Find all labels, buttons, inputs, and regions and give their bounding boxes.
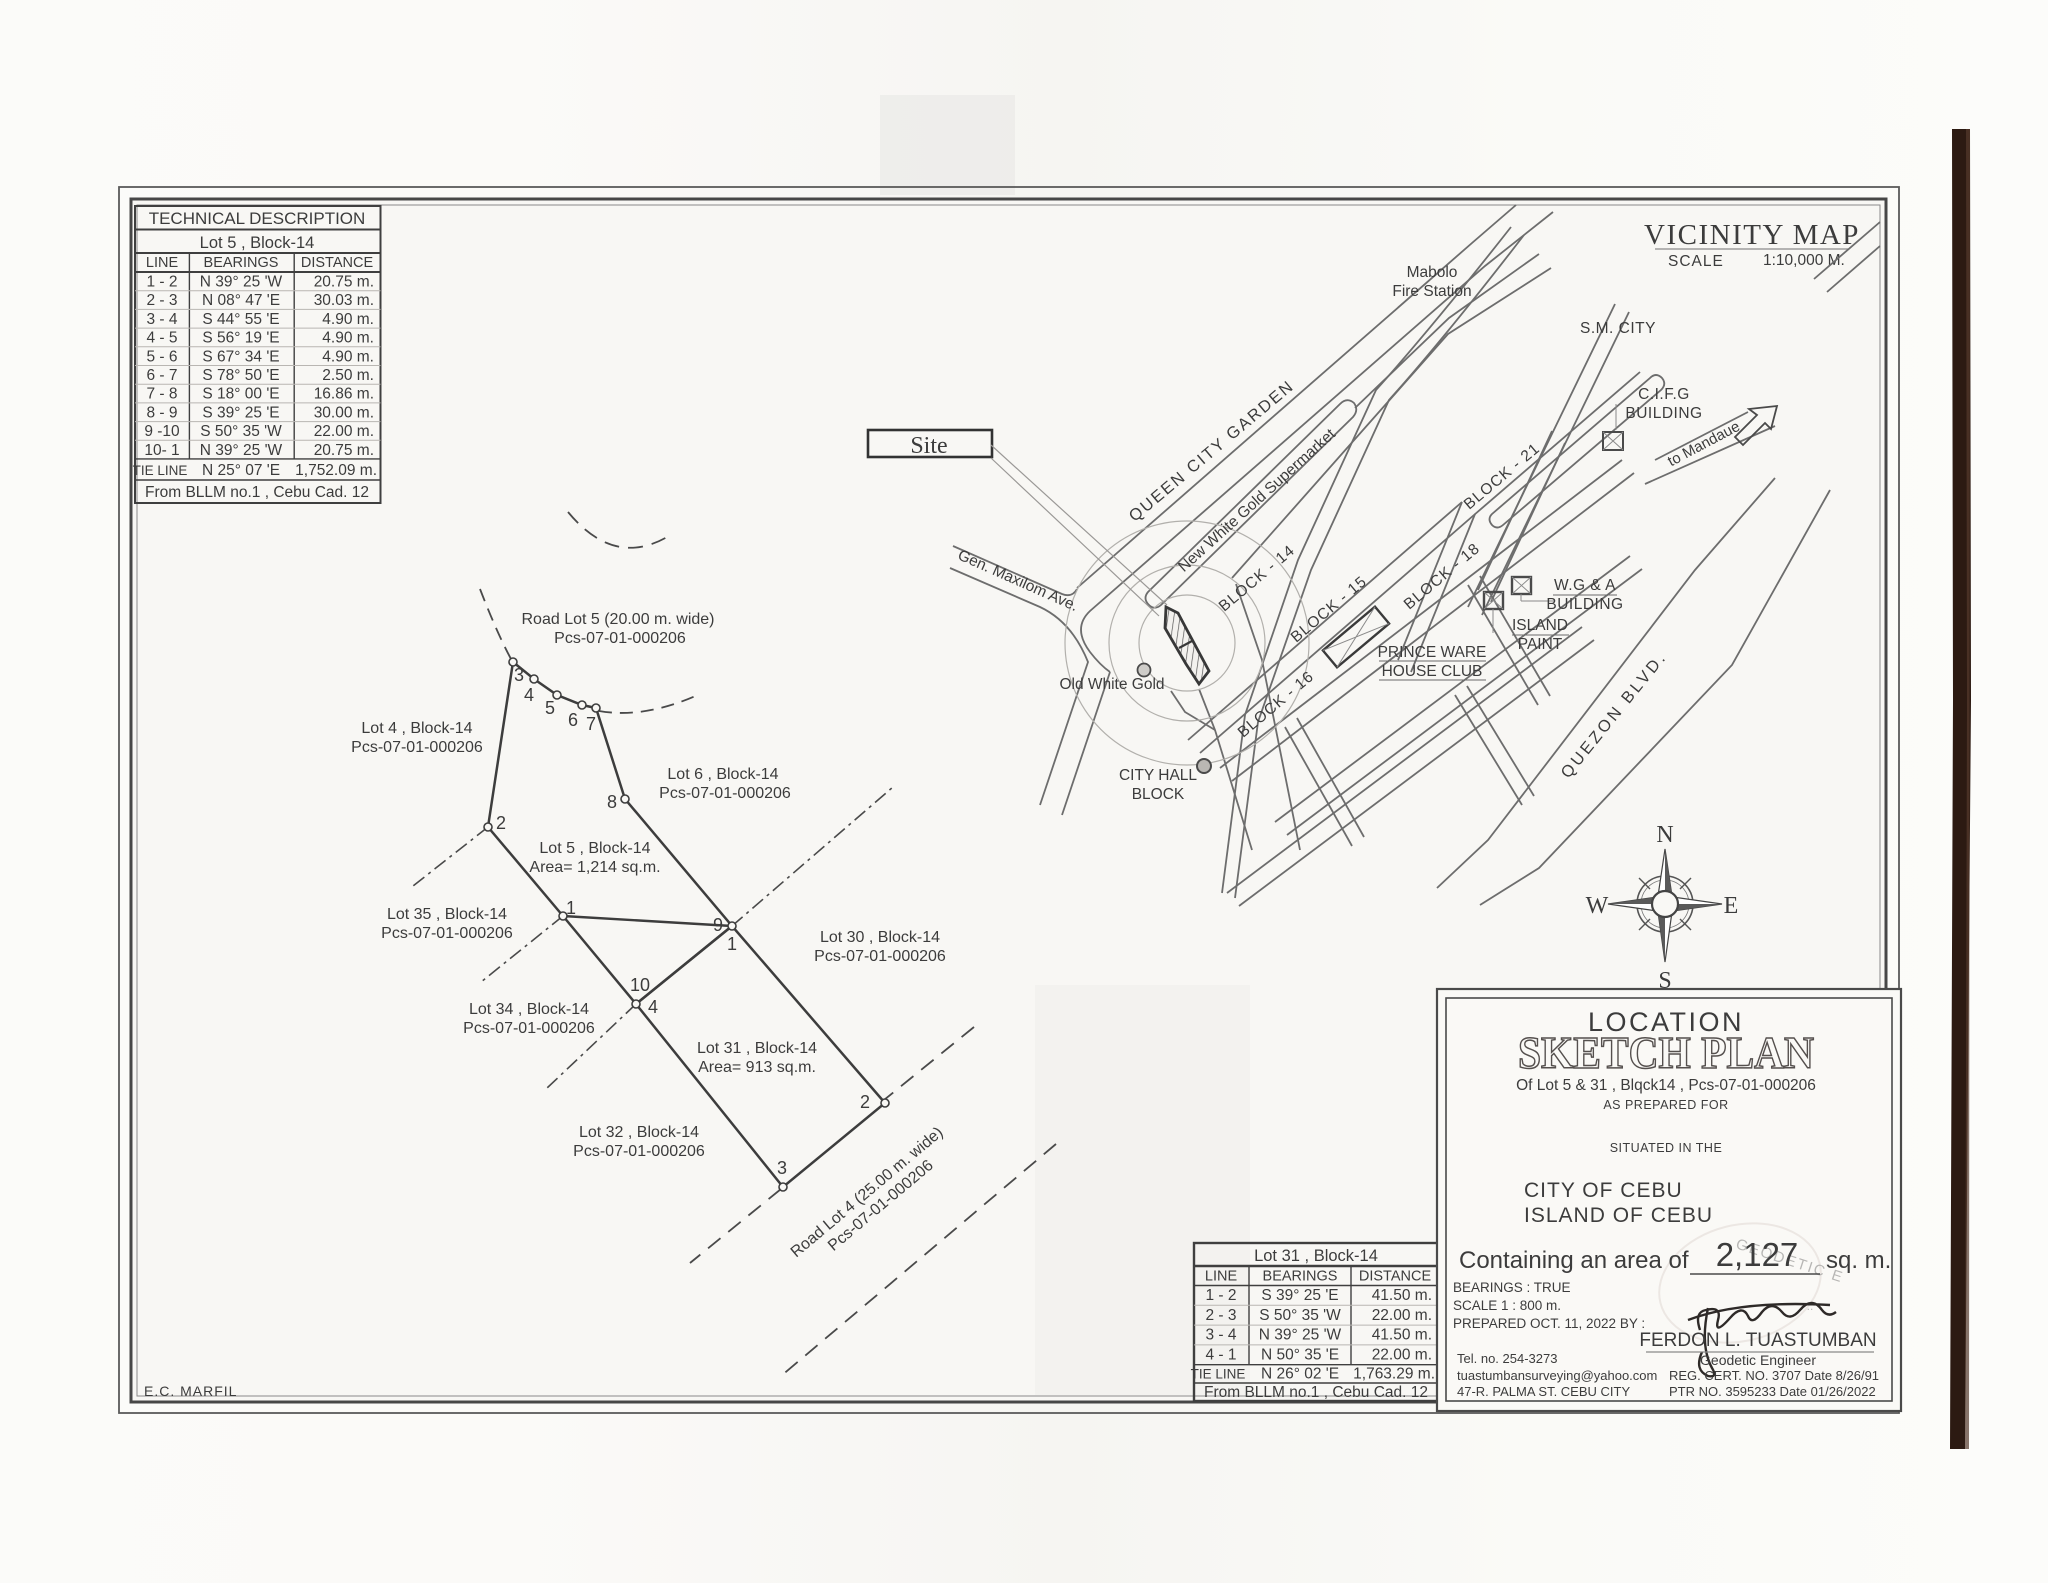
- svg-text:S 18° 00 'E: S 18° 00 'E: [202, 386, 279, 403]
- svg-text:Lot 5 , Block-14: Lot 5 , Block-14: [200, 234, 315, 252]
- svg-text:DISTANCE: DISTANCE: [301, 255, 374, 271]
- svg-text:Pcs-07-01-000206: Pcs-07-01-000206: [554, 630, 686, 647]
- svg-text:Fire Station: Fire Station: [1392, 283, 1471, 300]
- svg-text:BEARINGS : TRUE: BEARINGS : TRUE: [1453, 1280, 1571, 1295]
- svg-text:Old White Gold: Old White Gold: [1059, 676, 1164, 693]
- svg-text:Geodetic Engineer: Geodetic Engineer: [1700, 1352, 1816, 1368]
- svg-text:Tel. no. 254-3273: Tel. no. 254-3273: [1457, 1351, 1557, 1366]
- svg-text:N 39° 25 'W: N 39° 25 'W: [200, 274, 283, 291]
- svg-text:Lot 32 , Block-14: Lot 32 , Block-14: [579, 1124, 699, 1141]
- svg-text:N 25° 07 'E: N 25° 07 'E: [202, 462, 280, 479]
- svg-text:C.I.F.G: C.I.F.G: [1638, 386, 1690, 403]
- svg-text:1,752.09 m.: 1,752.09 m.: [295, 462, 377, 479]
- svg-text:Lot 31 , Block-14: Lot 31 , Block-14: [1254, 1247, 1378, 1265]
- svg-text:TIE LINE: TIE LINE: [1191, 1367, 1246, 1382]
- svg-text:30.03 m.: 30.03 m.: [314, 292, 374, 309]
- svg-text:BUILDING: BUILDING: [1625, 405, 1702, 422]
- svg-text:Lot 31 , Block-14: Lot 31 , Block-14: [697, 1040, 817, 1057]
- svg-text:N: N: [1656, 822, 1673, 848]
- svg-text:From BLLM no.1 , Cebu Cad. 12: From BLLM no.1 , Cebu Cad. 12: [145, 484, 369, 501]
- svg-text:Area= 1,214 sq.m.: Area= 1,214 sq.m.: [529, 859, 660, 876]
- svg-text:4 - 1: 4 - 1: [1205, 1346, 1236, 1363]
- svg-text:4.90 m.: 4.90 m.: [322, 330, 374, 347]
- svg-text:2.50 m.: 2.50 m.: [322, 367, 374, 384]
- svg-text:Of Lot 5 & 31 , Blqck14 , Pcs-: Of Lot 5 & 31 , Blqck14 , Pcs-07-01-0002…: [1516, 1077, 1816, 1094]
- svg-text:2 - 3: 2 - 3: [1205, 1307, 1236, 1324]
- svg-text:REG. CERT. NO. 3707 Date 8/2: REG. CERT. NO. 3707 Date 8/26/91: [1669, 1368, 1879, 1383]
- svg-text:BUILDING: BUILDING: [1546, 596, 1623, 613]
- svg-text:N 08° 47 'E: N 08° 47 'E: [202, 292, 280, 309]
- svg-text:From BLLM no.1 , Cebu Cad. 12: From BLLM no.1 , Cebu Cad. 12: [1204, 1384, 1428, 1401]
- svg-text:3: 3: [514, 665, 524, 685]
- svg-text:S 50° 35 'W: S 50° 35 'W: [200, 423, 282, 440]
- svg-text:Pcs-07-01-000206: Pcs-07-01-000206: [381, 925, 513, 942]
- svg-text:Lot 6 , Block-14: Lot 6 , Block-14: [667, 766, 778, 783]
- svg-text:2: 2: [860, 1092, 870, 1112]
- svg-text:8 - 9: 8 - 9: [146, 404, 177, 421]
- svg-text:SCALE 1 : 800 m.: SCALE 1 : 800 m.: [1453, 1298, 1561, 1313]
- svg-text:CITY OF CEBU: CITY OF CEBU: [1524, 1179, 1683, 1202]
- svg-text:BEARINGS: BEARINGS: [204, 255, 279, 271]
- svg-text:W.G & A: W.G & A: [1554, 577, 1616, 594]
- svg-text:PAINT: PAINT: [1518, 636, 1563, 653]
- svg-text:PREPARED OCT. 11, 2022 BY :: PREPARED OCT. 11, 2022 BY :: [1453, 1316, 1645, 1331]
- svg-text:10: 10: [630, 975, 650, 995]
- svg-text:BLOCK: BLOCK: [1132, 786, 1185, 803]
- svg-text:S.M. CITY: S.M. CITY: [1580, 320, 1656, 337]
- svg-text:Site: Site: [910, 433, 947, 459]
- svg-text:41.50 m.: 41.50 m.: [1372, 1287, 1432, 1304]
- svg-text:Pcs-07-01-000206: Pcs-07-01-000206: [659, 785, 791, 802]
- svg-text:SITUATED IN THE: SITUATED IN THE: [1610, 1141, 1723, 1155]
- svg-text:2: 2: [496, 813, 506, 833]
- svg-text:8: 8: [607, 792, 617, 812]
- svg-text:7 - 8: 7 - 8: [146, 386, 177, 403]
- svg-text:6: 6: [568, 710, 578, 730]
- svg-text:Lot 4 , Block-14: Lot 4 , Block-14: [361, 720, 472, 737]
- svg-text:Pcs-07-01-000206: Pcs-07-01-000206: [814, 948, 946, 965]
- svg-text:20.75 m.: 20.75 m.: [314, 274, 374, 291]
- svg-text:Pcs-07-01-000206: Pcs-07-01-000206: [351, 739, 483, 756]
- svg-text:LINE: LINE: [1205, 1269, 1238, 1285]
- svg-text:16.86 m.: 16.86 m.: [314, 386, 374, 403]
- svg-text:Containing an area of: Containing an area of: [1459, 1247, 1689, 1274]
- svg-text:BEARINGS: BEARINGS: [1263, 1269, 1338, 1285]
- svg-text:2,127: 2,127: [1716, 1236, 1799, 1273]
- svg-text:ISLAND OF CEBU: ISLAND OF CEBU: [1524, 1204, 1713, 1227]
- svg-text:4: 4: [524, 685, 534, 705]
- svg-text:Lot 35 , Block-14: Lot 35 , Block-14: [387, 906, 507, 923]
- svg-text:4.90 m.: 4.90 m.: [322, 348, 374, 365]
- svg-text:E.C. MARFIL: E.C. MARFIL: [144, 1383, 237, 1399]
- svg-text:1: 1: [566, 898, 576, 918]
- svg-text:1 - 2: 1 - 2: [146, 274, 177, 291]
- svg-text:W: W: [1586, 893, 1609, 919]
- svg-text:SCALE: SCALE: [1668, 253, 1724, 270]
- svg-text:Lot 34 , Block-14: Lot 34 , Block-14: [469, 1001, 589, 1018]
- svg-text:4: 4: [648, 997, 658, 1017]
- svg-text:VICINITY MAP: VICINITY MAP: [1644, 219, 1860, 251]
- svg-text:1:10,000 M.: 1:10,000 M.: [1763, 252, 1845, 269]
- svg-text:S 39° 25 'E: S 39° 25 'E: [202, 404, 279, 421]
- svg-text:41.50 m.: 41.50 m.: [1372, 1327, 1432, 1344]
- svg-text:N 39° 25 'W: N 39° 25 'W: [1259, 1327, 1342, 1344]
- svg-text:1 - 2: 1 - 2: [1205, 1287, 1236, 1304]
- svg-text:22.00 m.: 22.00 m.: [314, 423, 374, 440]
- svg-text:PRINCE WARE: PRINCE WARE: [1378, 644, 1487, 661]
- svg-text:Mabolo: Mabolo: [1407, 264, 1458, 281]
- svg-text:S 67° 34 'E: S 67° 34 'E: [202, 348, 279, 365]
- svg-text:5: 5: [545, 698, 555, 718]
- svg-text:30.00 m.: 30.00 m.: [314, 404, 374, 421]
- svg-text:S 56° 19 'E: S 56° 19 'E: [202, 330, 279, 347]
- svg-text:10- 1: 10- 1: [144, 442, 179, 459]
- svg-text:sq. m.: sq. m.: [1826, 1247, 1891, 1274]
- svg-text:2 - 3: 2 - 3: [146, 292, 177, 309]
- svg-text:PTR NO. 3595233 Date 01/26/2: PTR NO. 3595233 Date 01/26/2022: [1669, 1384, 1876, 1399]
- svg-text:4 - 5: 4 - 5: [146, 330, 177, 347]
- svg-text:3 - 4: 3 - 4: [1205, 1327, 1236, 1344]
- svg-text:9 -10: 9 -10: [144, 423, 180, 440]
- svg-text:tuastumbansurveying@yahoo.com: tuastumbansurveying@yahoo.com: [1457, 1368, 1657, 1383]
- svg-text:9: 9: [713, 915, 723, 935]
- svg-text:1: 1: [727, 934, 737, 954]
- svg-text:22.00 m.: 22.00 m.: [1372, 1307, 1432, 1324]
- svg-text:Pcs-07-01-000206: Pcs-07-01-000206: [573, 1143, 705, 1160]
- svg-text:S 78° 50 'E: S 78° 50 'E: [202, 367, 279, 384]
- svg-text:Pcs-07-01-000206: Pcs-07-01-000206: [463, 1020, 595, 1037]
- svg-text:S 50° 35 'W: S 50° 35 'W: [1259, 1307, 1341, 1324]
- svg-text:ISLAND: ISLAND: [1512, 617, 1568, 634]
- svg-text:Lot 30 , Block-14: Lot 30 , Block-14: [820, 929, 940, 946]
- svg-text:Lot 5 , Block-14: Lot 5 , Block-14: [539, 840, 650, 857]
- svg-text:22.00 m.: 22.00 m.: [1372, 1346, 1432, 1363]
- svg-text:S 44° 55 'E: S 44° 55 'E: [202, 311, 279, 328]
- svg-text:N 26° 02 'E: N 26° 02 'E: [1261, 1366, 1339, 1383]
- svg-text:Road Lot 5 (20.00 m. wide): Road Lot 5 (20.00 m. wide): [522, 611, 715, 628]
- svg-text:Area= 913 sq.m.: Area= 913 sq.m.: [698, 1059, 816, 1076]
- svg-text:FERDON L. TUASTUMBAN: FERDON L. TUASTUMBAN: [1639, 1330, 1876, 1351]
- svg-text:E: E: [1724, 893, 1739, 919]
- svg-text:TIE LINE: TIE LINE: [133, 463, 188, 478]
- svg-text:HOUSE CLUB: HOUSE CLUB: [1382, 663, 1483, 680]
- svg-text:6 - 7: 6 - 7: [146, 367, 177, 384]
- svg-text:5 - 6: 5 - 6: [146, 348, 177, 365]
- svg-text:SKETCH PLAN: SKETCH PLAN: [1518, 1028, 1814, 1078]
- svg-text:S 39° 25 'E: S 39° 25 'E: [1261, 1287, 1338, 1304]
- svg-text:47-R. PALMA ST. CEBU CITY: 47-R. PALMA ST. CEBU CITY: [1457, 1384, 1630, 1399]
- svg-text:3: 3: [777, 1158, 787, 1178]
- svg-text:4.90 m.: 4.90 m.: [322, 311, 374, 328]
- svg-text:N 39° 25 'W: N 39° 25 'W: [200, 442, 283, 459]
- svg-text:N 50° 35 'E: N 50° 35 'E: [1261, 1346, 1339, 1363]
- svg-text:1,763.29 m.: 1,763.29 m.: [1353, 1366, 1435, 1383]
- svg-text:TECHNICAL DESCRIPTION: TECHNICAL DESCRIPTION: [149, 209, 366, 228]
- svg-text:AS PREPARED FOR: AS PREPARED FOR: [1603, 1098, 1728, 1112]
- svg-text:20.75 m.: 20.75 m.: [314, 442, 374, 459]
- svg-text:DISTANCE: DISTANCE: [1359, 1269, 1432, 1285]
- svg-text:3 - 4: 3 - 4: [146, 311, 177, 328]
- svg-text:7: 7: [586, 714, 596, 734]
- svg-text:. ..: . ..: [1800, 1299, 1813, 1313]
- svg-text:CITY HALL: CITY HALL: [1119, 767, 1197, 784]
- svg-text:LINE: LINE: [146, 255, 179, 271]
